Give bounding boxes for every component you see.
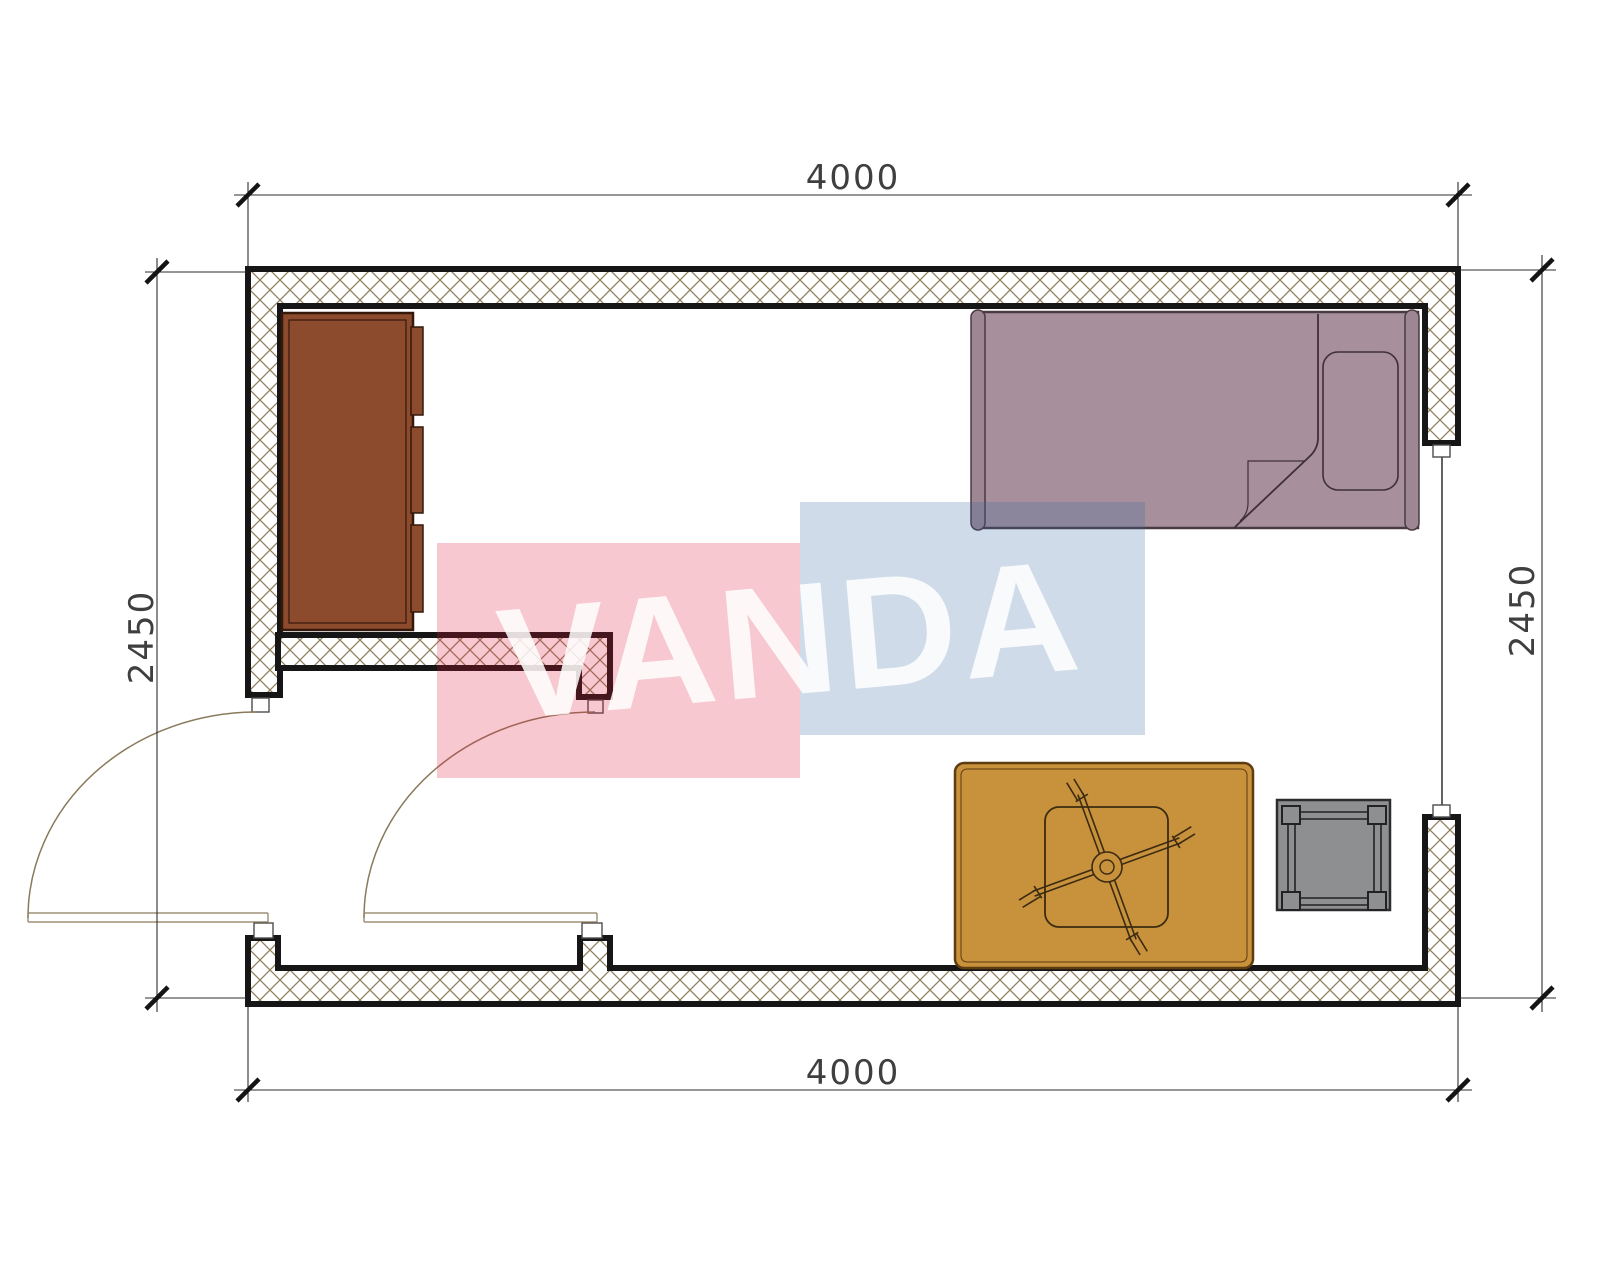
dimension-left-label: 2450 xyxy=(122,590,162,685)
stool-table xyxy=(1277,800,1390,910)
door-frame-icon xyxy=(582,923,602,938)
single-bed xyxy=(971,310,1419,530)
watermark: VANDA xyxy=(437,502,1145,778)
door-leaf xyxy=(28,913,268,922)
dimension-left: 2450 xyxy=(122,258,246,1012)
stool-leg xyxy=(1282,806,1300,824)
wardrobe xyxy=(282,313,423,630)
dimension-right-label: 2450 xyxy=(1503,563,1543,658)
window-frame-bottom xyxy=(1433,805,1450,817)
chair-hub xyxy=(1092,852,1122,882)
bed-mattress xyxy=(975,312,1418,528)
dimension-bottom: 4000 xyxy=(234,1007,1472,1102)
stool-leg xyxy=(1368,806,1386,824)
bed-headboard xyxy=(1405,310,1419,530)
wardrobe-panel xyxy=(411,525,423,612)
bed-footboard xyxy=(971,310,985,530)
stool-leg xyxy=(1368,892,1386,910)
dimension-right: 2450 xyxy=(1460,255,1556,1012)
entry-door xyxy=(28,698,273,938)
dimension-top: 4000 xyxy=(234,158,1472,266)
door-frame-icon xyxy=(252,698,269,712)
floor-plan-page: 4000 4000 2450 2450 xyxy=(0,0,1600,1280)
door-frame-icon xyxy=(254,923,273,938)
wardrobe-panel xyxy=(411,427,423,513)
window xyxy=(1433,445,1450,817)
door-leaf xyxy=(364,913,597,922)
wardrobe-panel xyxy=(411,327,423,415)
door-swing-arc xyxy=(28,712,257,918)
window-frame-top xyxy=(1433,445,1450,457)
stool-leg xyxy=(1282,892,1300,910)
wardrobe-body xyxy=(282,313,413,630)
floor-plan-drawing: 4000 4000 2450 2450 xyxy=(0,0,1600,1280)
dimension-bottom-label: 4000 xyxy=(806,1053,901,1093)
dimension-top-label: 4000 xyxy=(806,158,901,198)
